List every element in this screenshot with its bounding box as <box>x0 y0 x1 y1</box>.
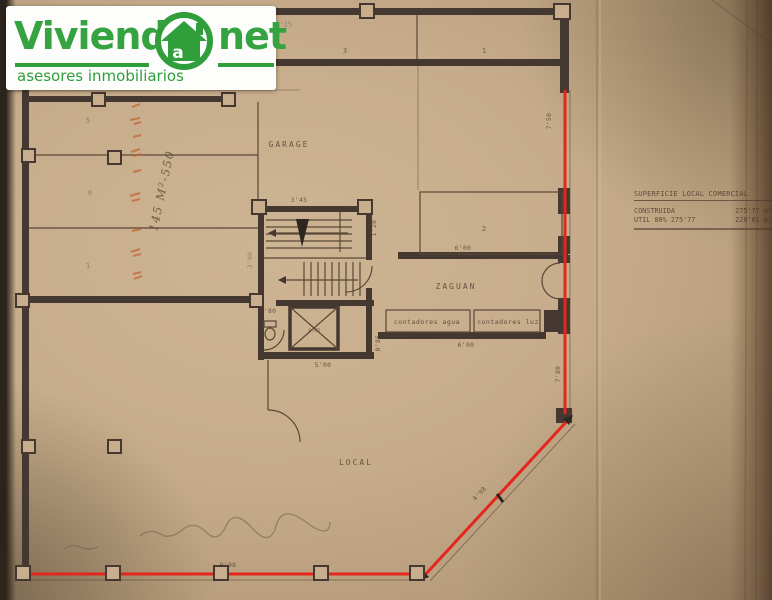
room-number-5: 5 <box>86 117 90 125</box>
dim-stair-top: 3'45 <box>291 197 308 204</box>
summary-table-bottom-rule <box>634 228 772 230</box>
summary-table-row-construida: CONSTRUIDA 275'77 m² <box>634 207 772 216</box>
dim-meters-depth: 0'85 <box>375 335 382 352</box>
entrance-door-leaf-top <box>542 263 560 281</box>
dim-stair-right: 1'20 <box>371 220 378 237</box>
summary-table-title: SUPERFICIE LOCAL COMERCIAL <box>634 190 772 201</box>
floorplan-drawing: 145 M²-550 GARAGE ZAGUAN LOCAL contadore… <box>0 0 772 600</box>
label-contadores-agua: contadores agua <box>394 318 460 326</box>
logo-brand-left: Viviend <box>14 14 167 58</box>
room-number-2: 2 <box>482 225 486 233</box>
room-number-1-top: 1 <box>482 47 486 55</box>
logo-brand-right: net <box>218 14 286 58</box>
surface-summary-table: SUPERFICIE LOCAL COMERCIAL CONSTRUIDA 27… <box>634 190 772 230</box>
dim-chamfer: 4'98 <box>472 485 489 502</box>
room-number-1-left: 1 <box>86 262 90 270</box>
logo-subtitle: asesores inmobiliarios <box>17 67 184 85</box>
label-garage: GARAGE <box>269 140 310 149</box>
logo-at-letter: a <box>172 43 183 63</box>
summary-table-row-util: UTIL 80% 275'77 220'61 m² <box>634 216 772 225</box>
staircase <box>264 212 366 296</box>
room-number-6: 6 <box>88 189 92 197</box>
util-value: 220'61 m² <box>735 216 772 225</box>
logo-underline-right <box>218 63 274 67</box>
room-number-3: 3 <box>343 47 347 55</box>
dim-wc: 0'80 <box>260 308 277 315</box>
dim-meters-width: 6'00 <box>458 342 475 349</box>
entrance-door-leaf-bottom <box>542 281 560 299</box>
pencil-scribble-bottom <box>140 514 330 538</box>
dim-zaguan-width: 6'00 <box>455 245 472 252</box>
stair-direction-arrows <box>268 219 358 284</box>
photographed-floorplan: 145 M²-550 GARAGE ZAGUAN LOCAL contadore… <box>0 0 772 600</box>
construida-label: CONSTRUIDA <box>634 207 675 216</box>
dim-bottom: 9'98 <box>220 562 237 569</box>
handwritten-area-note: 145 M²-550 <box>146 149 177 233</box>
house-at-icon: a <box>152 8 216 72</box>
label-local: LOCAL <box>339 458 373 467</box>
util-label: UTIL 80% 275'77 <box>634 216 695 225</box>
dim-left-lower: 10'80 <box>23 275 30 296</box>
dim-right-lower: 7'80 <box>555 366 562 383</box>
pencil-scribble-corner <box>64 545 98 549</box>
wc-door-arc <box>264 330 284 350</box>
dim-stair-left: 3'00 <box>247 252 254 269</box>
local-door-arc <box>268 410 300 442</box>
dim-corridor: 5'00 <box>315 362 332 369</box>
handwritten-orange-marks <box>130 104 142 279</box>
label-zaguan: ZAGUAN <box>436 282 477 291</box>
wc-fixture <box>264 321 276 340</box>
elevator-size-label: 4.00 <box>308 328 320 334</box>
construida-value: 275'77 m² <box>735 207 772 216</box>
viviendanet-logo: Viviend a net asesores inmobiliarios <box>6 6 276 90</box>
label-contadores-luz: contadores luz <box>477 318 539 326</box>
dim-right-upper: 7'50 <box>546 113 553 130</box>
